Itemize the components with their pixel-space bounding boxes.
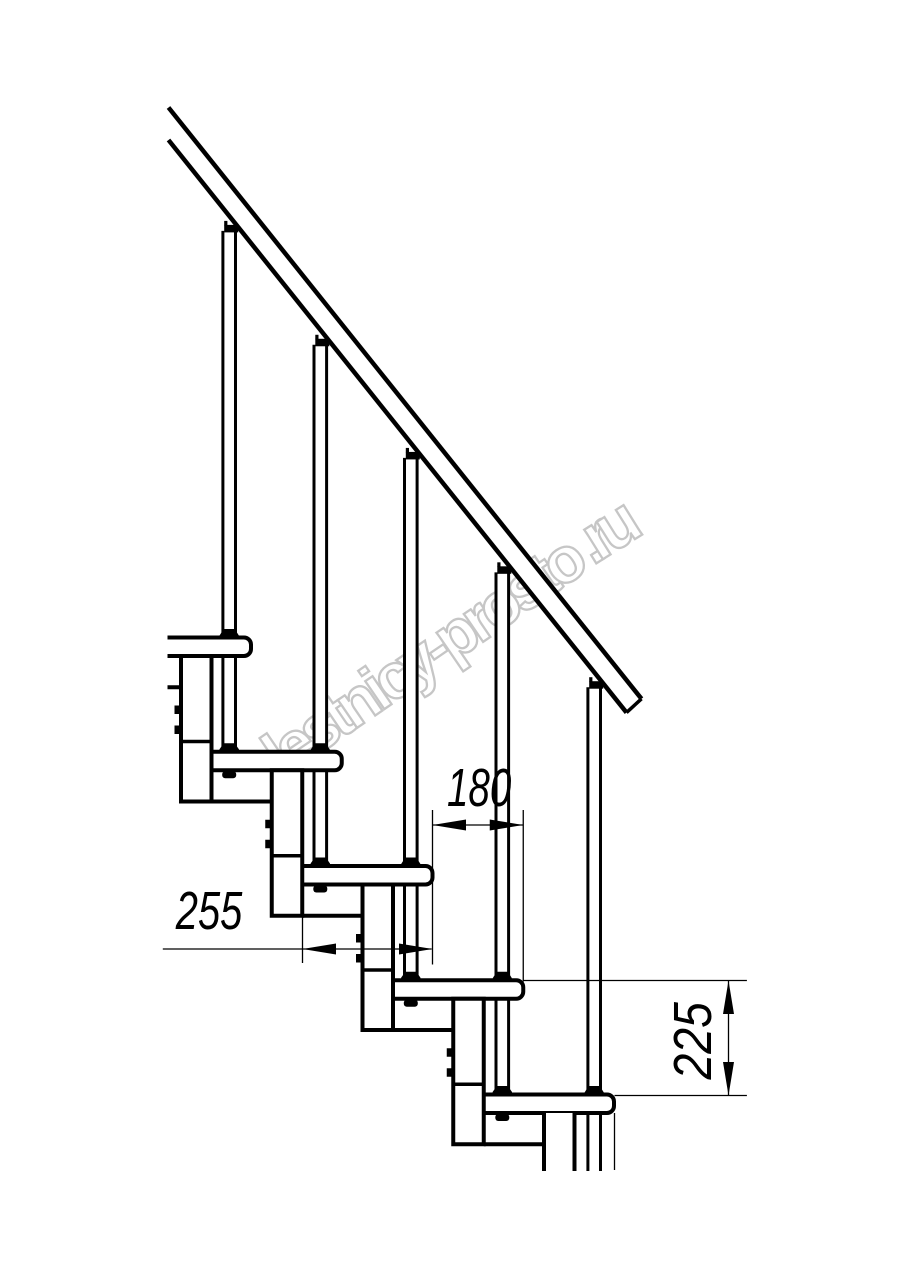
svg-text:225: 225 <box>664 1002 723 1080</box>
svg-text:255: 255 <box>175 882 242 941</box>
svg-text:180: 180 <box>447 759 511 818</box>
